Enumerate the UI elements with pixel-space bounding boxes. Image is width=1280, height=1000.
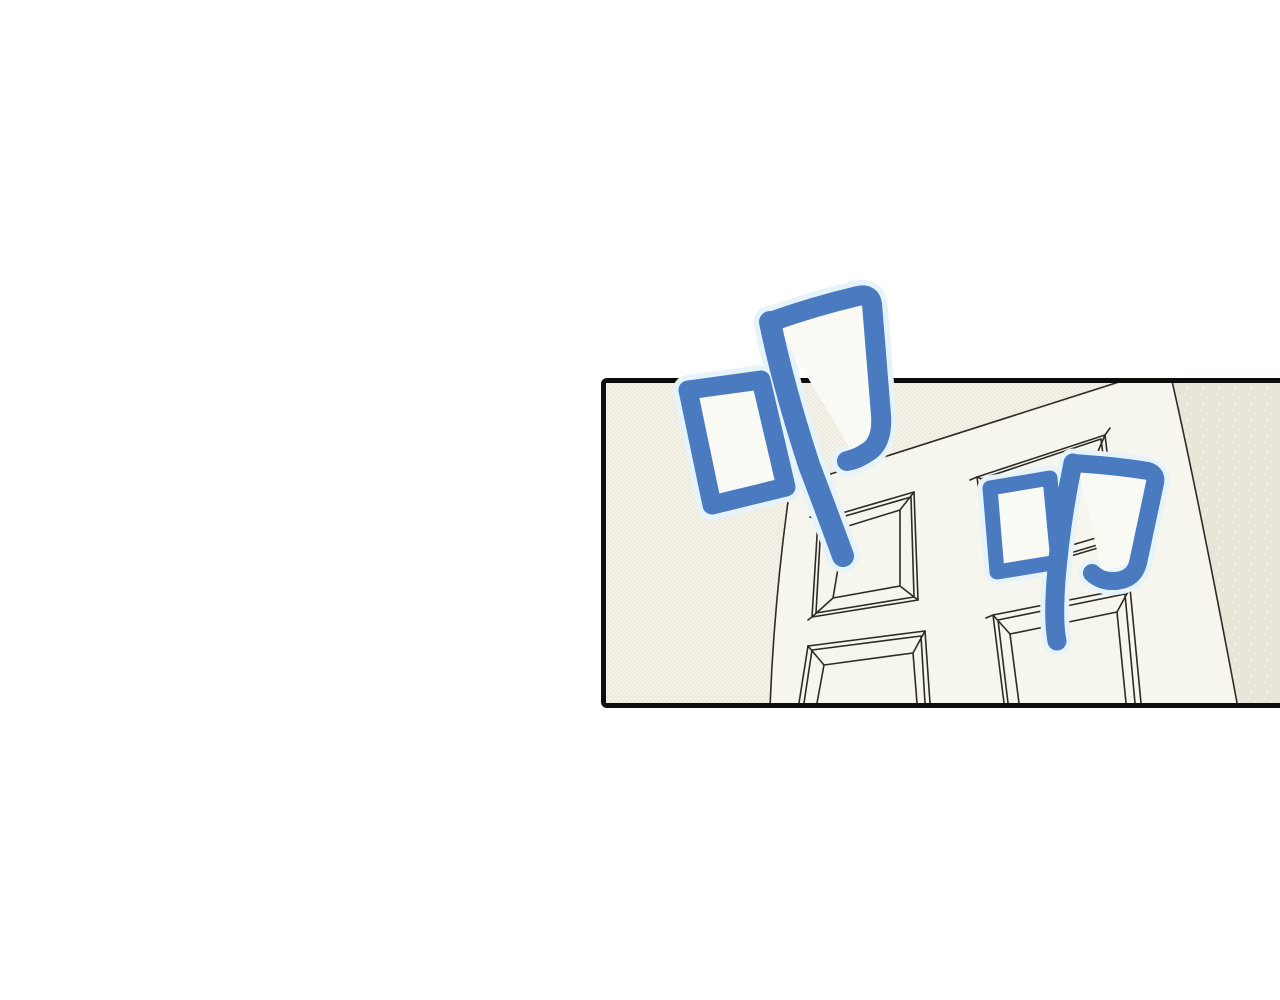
comic-page [0,0,1280,1000]
door-scene [606,383,1280,703]
comic-panel [601,378,1280,708]
